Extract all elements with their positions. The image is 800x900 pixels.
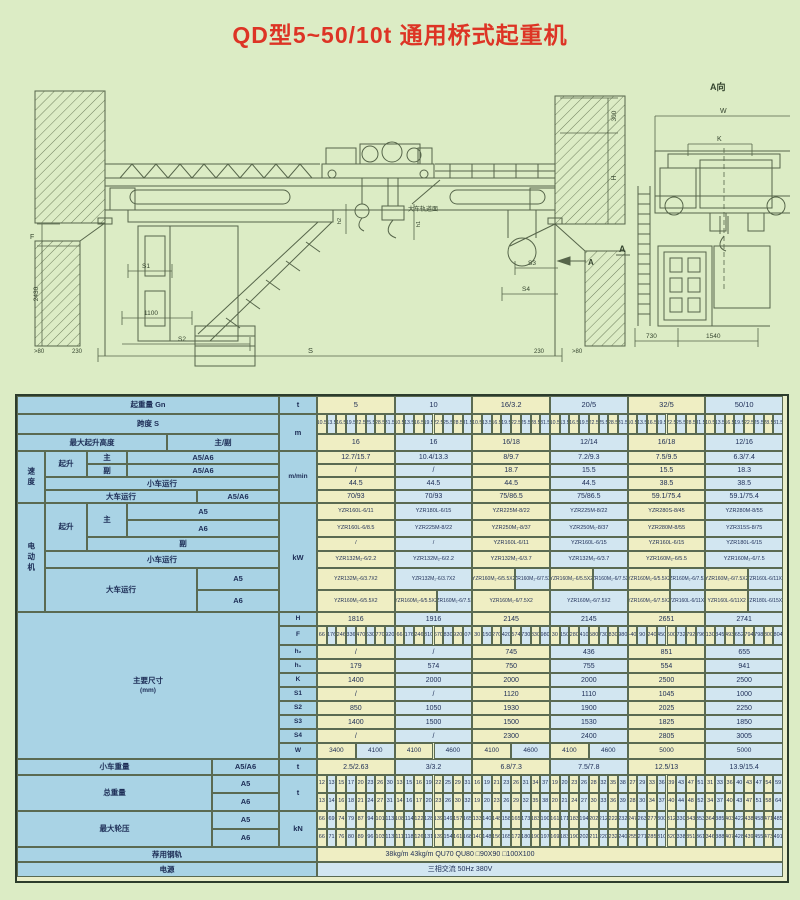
- data-cell-wl_a6: 103: [375, 829, 385, 847]
- data-cell-S1: 1120: [472, 687, 550, 701]
- data-cell-v_crane: 59.1/75.4: [628, 490, 706, 503]
- data-cell-S1: 1110: [550, 687, 628, 701]
- data-cell-h2: 851: [628, 645, 706, 659]
- data-cell-gw_a5: 30: [385, 775, 395, 793]
- data-cell-gw_a6: 21: [356, 793, 366, 811]
- header-motor: 电动机: [17, 503, 45, 612]
- data-cell-F: 176: [327, 626, 337, 645]
- data-cell-gw_a5: 16: [414, 775, 424, 793]
- data-cell-tw: 13.9/15.4: [705, 759, 783, 775]
- data-cell-span: 13.5: [560, 414, 570, 434]
- end-view-drawing: [616, 116, 790, 347]
- data-cell-span: 13.5: [327, 414, 337, 434]
- dim-K-label: K: [717, 136, 722, 143]
- data-cell-gw_a6: 43: [734, 793, 744, 811]
- data-cell-wl_a6: 190: [569, 829, 579, 847]
- girder-cylinder-left: [130, 190, 290, 204]
- data-cell-v_main: 10.4/13.3: [395, 451, 473, 464]
- ladder: [638, 186, 650, 326]
- header-dim-S1: S1: [279, 687, 317, 701]
- data-cell-F: 580: [589, 626, 599, 645]
- data-cell-span: 13.5: [637, 414, 647, 434]
- data-cell-lift: 16: [395, 434, 473, 451]
- data-cell-capacity: 10: [395, 396, 473, 414]
- data-cell-m_crane_a5: YZR160M₂-6/7.5X2: [593, 568, 628, 590]
- data-cell-gw_a6: 14: [327, 793, 337, 811]
- data-cell-gw_a5: 33: [715, 775, 725, 793]
- data-cell-wl_a6: 168: [463, 829, 473, 847]
- data-cell-F: 310: [424, 626, 434, 645]
- data-cell-S3: 1500: [472, 715, 550, 729]
- data-cell-gw_a5: 12: [317, 775, 327, 793]
- data-cell-m_main_a5: YZR280S-8/45: [628, 503, 706, 520]
- data-cell-gw_a5: 22: [434, 775, 444, 793]
- data-cell-m_main_a5: YZR225M-8/22: [550, 503, 628, 520]
- data-cell-span: 16.5: [492, 414, 502, 434]
- data-cell-S3: 1500: [395, 715, 473, 729]
- data-cell-span: 28.5: [686, 414, 696, 434]
- rail-surface-note: 大车轨道面: [408, 205, 438, 213]
- data-cell-wl_a5: 222: [608, 811, 618, 829]
- data-cell-gw_a5: 20: [356, 775, 366, 793]
- data-cell-v_aux: 15.5: [628, 464, 706, 477]
- spec-table: 起重量 Gnt51016/3.220/532/550/10跨度 Sm10.513…: [15, 394, 789, 883]
- header-cell: 副: [87, 537, 279, 551]
- data-cell-wl_a6: 118: [404, 829, 414, 847]
- header-cell: A5/A6: [127, 464, 279, 477]
- data-cell-wl_a5: 194: [579, 811, 589, 829]
- data-cell-m_main_a6: YZR315S-8/75: [705, 520, 783, 537]
- data-cell-wl_a6: 76: [336, 829, 346, 847]
- header-total-weight: 总重量: [17, 775, 212, 811]
- data-cell-wl_a5: 183: [569, 811, 579, 829]
- data-cell-F: 130: [705, 626, 715, 645]
- data-cell-span: 10.5: [395, 414, 405, 434]
- data-cell-gw_a6: 20: [424, 793, 434, 811]
- data-cell-F: -40: [628, 626, 638, 645]
- data-cell-v_main: 7.5/9.5: [628, 451, 706, 464]
- side-view-labels: F 2430 S1 1100 S2 S3 S4 S 230 230 >80 >8…: [30, 110, 618, 355]
- data-cell-m_crane_a5: YZR160L-6/11X2: [748, 568, 783, 590]
- data-cell-gw_a5: 19: [424, 775, 434, 793]
- data-cell-gw_a5: 51: [696, 775, 706, 793]
- data-cell-wl_a6: 202: [579, 829, 589, 847]
- data-cell-v_main: 6.3/7.4: [705, 451, 783, 464]
- data-cell-span: 25.5: [521, 414, 531, 434]
- data-cell-h1: 554: [628, 659, 706, 673]
- header-capacity: 起重量 Gn: [17, 396, 279, 414]
- data-cell-wl_a5: 74: [336, 811, 346, 829]
- data-cell-wl_a6: 113: [385, 829, 395, 847]
- data-cell-wl_a6: 211: [589, 829, 599, 847]
- data-cell-m_trolley: YZR132M₂-6/2.2: [317, 551, 395, 568]
- data-cell-span: 16.5: [725, 414, 735, 434]
- data-cell-gw_a6: 30: [453, 793, 463, 811]
- data-cell-gw_a5: 33: [647, 775, 657, 793]
- data-cell-wl_a6: 361: [696, 829, 706, 847]
- data-cell-m_main_a6: YZR225M-8/22: [395, 520, 473, 537]
- data-cell-S4: /: [317, 729, 395, 743]
- data-cell-v_crane: 70/93: [395, 490, 473, 503]
- data-cell-F: 493: [725, 626, 735, 645]
- header-cell: A5/A6: [212, 759, 279, 775]
- data-cell-wl_a5: 122: [414, 811, 424, 829]
- data-cell-H: 2651: [628, 612, 706, 626]
- data-cell-gw_a6: 31: [385, 793, 395, 811]
- data-cell-gw_a6: 20: [550, 793, 560, 811]
- data-cell-v_trolley: 44.5: [550, 477, 628, 490]
- data-cell-wl_a6: 320: [667, 829, 677, 847]
- data-cell-v_main: 8/9.7: [472, 451, 550, 464]
- data-cell-wl_a6: 80: [346, 829, 356, 847]
- data-cell-gw_a5: 59: [773, 775, 783, 793]
- data-cell-wl_a5: 403: [725, 811, 735, 829]
- data-cell-gw_a5: 19: [482, 775, 492, 793]
- data-cell-span: 31.5: [773, 414, 783, 434]
- data-cell-rail: 38kg/m 43kg/m QU70 QU80 □90X90 □100X100: [317, 847, 783, 862]
- data-cell-F: 280: [569, 626, 579, 645]
- header-cell: 大车运行: [45, 490, 197, 503]
- data-cell-wl_a6: 156: [492, 829, 502, 847]
- data-cell-gw_a6: 14: [395, 793, 405, 811]
- end-truck-left: [110, 188, 135, 210]
- data-cell-h1: 941: [705, 659, 783, 673]
- data-cell-wl_a6: 165: [501, 829, 511, 847]
- data-cell-gw_a5: 31: [705, 775, 715, 793]
- data-cell-gw_a5: 31: [463, 775, 473, 793]
- data-cell-gw_a6: 44: [676, 793, 686, 811]
- dim-300-label: 300: [611, 110, 618, 121]
- data-cell-wl_a5: 312: [667, 811, 677, 829]
- header-cell: A6: [212, 829, 279, 847]
- data-cell-wl_a6: 310: [657, 829, 667, 847]
- data-cell-m_aux: YZR160L-6/15: [550, 537, 628, 551]
- data-cell-gw_a5: 13: [327, 775, 337, 793]
- data-cell-v_aux: 18.3: [705, 464, 783, 477]
- data-cell-span: 16.5: [336, 414, 346, 434]
- data-cell-span: 28.5: [453, 414, 463, 434]
- dim-S4-label: S4: [522, 286, 530, 293]
- girder-section: [714, 246, 770, 308]
- data-cell-gw_a5: 29: [637, 775, 647, 793]
- data-cell-h2: 655: [705, 645, 783, 659]
- data-cell-wl_a5: 87: [356, 811, 366, 829]
- data-cell-m_crane_a6: YZR160M₂-6/5.5X2: [395, 590, 438, 612]
- data-cell-S1: 1045: [628, 687, 706, 701]
- data-cell-wl_a6: 338: [676, 829, 686, 847]
- header-cell: A6: [212, 793, 279, 811]
- data-cell-gw_a6: 17: [414, 793, 424, 811]
- data-cell-F: 770: [375, 626, 385, 645]
- data-cell-m_main_a5: YZR280M-8/55: [705, 503, 783, 520]
- data-cell-wl_a6: 473: [764, 829, 774, 847]
- header-cell: A5: [212, 811, 279, 829]
- data-cell-F: 345: [715, 626, 725, 645]
- data-cell-wl_a6: 96: [366, 829, 376, 847]
- data-cell-v_aux: 15.5: [550, 464, 628, 477]
- header-dim-W: W: [279, 743, 317, 759]
- data-cell-W: 5000: [705, 743, 783, 759]
- data-cell-gw_a6: 16: [336, 793, 346, 811]
- dim-230-right-label: 230: [534, 349, 545, 355]
- data-cell-span: 10.5: [317, 414, 327, 434]
- data-cell-gw_a5: 39: [667, 775, 677, 793]
- data-cell-S2: 1050: [395, 701, 473, 715]
- data-cell-m_main_a6: YZR250M₁-8/37: [472, 520, 550, 537]
- data-cell-F: 574: [511, 626, 521, 645]
- data-cell-span: 28.5: [375, 414, 385, 434]
- data-cell-F: 30: [472, 626, 482, 645]
- data-cell-H: 2145: [550, 612, 628, 626]
- data-cell-F: 336: [346, 626, 356, 645]
- data-cell-wl_a5: 300: [657, 811, 667, 829]
- data-cell-W: 3400: [317, 743, 356, 759]
- data-cell-F: 830: [608, 626, 618, 645]
- data-cell-gw_a5: 21: [492, 775, 502, 793]
- data-cell-lift: 12/16: [705, 434, 783, 451]
- data-cell-K: 2500: [705, 673, 783, 687]
- header-rail: 荐用钢轨: [17, 847, 317, 862]
- data-cell-wl_a5: 161: [550, 811, 560, 829]
- data-cell-K: 2000: [395, 673, 473, 687]
- data-cell-span: 10.5: [628, 414, 638, 434]
- data-cell-v_main: 12.7/15.7: [317, 451, 395, 464]
- data-cell-wl_a5: 133: [472, 811, 482, 829]
- data-cell-span: 10.5: [472, 414, 482, 434]
- data-cell-F: 270: [492, 626, 502, 645]
- data-cell-gw_a5: 15: [404, 775, 414, 793]
- header-dim-H: H: [279, 612, 317, 626]
- data-cell-m_aux: YZR180L-6/15: [705, 537, 783, 551]
- data-cell-F: 240: [647, 626, 657, 645]
- trolley: [322, 142, 434, 178]
- data-cell-F: 150: [560, 626, 570, 645]
- dim-S3-label: S3: [528, 260, 536, 267]
- data-cell-span: 22.5: [434, 414, 444, 434]
- data-cell-m_crane_a6: YZR160M₂-6/5.5X2: [317, 590, 395, 612]
- header-cell: 主: [87, 503, 127, 537]
- data-cell-F: 470: [356, 626, 366, 645]
- data-cell-h2: 436: [550, 645, 628, 659]
- data-cell-wl_a6: 388: [715, 829, 725, 847]
- data-cell-gw_a6: 19: [472, 793, 482, 811]
- header-power: 电源: [17, 862, 317, 877]
- dim-1100-label: 1100: [144, 310, 158, 317]
- header-max-wheel-load: 最大轮压: [17, 811, 212, 847]
- data-cell-K: 1400: [317, 673, 395, 687]
- data-cell-H: 2741: [705, 612, 783, 626]
- data-cell-gw_a6: 47: [744, 793, 754, 811]
- data-cell-gw_a6: 51: [754, 793, 764, 811]
- data-cell-span: 22.5: [589, 414, 599, 434]
- dim-H-label: H: [611, 175, 618, 180]
- data-cell-span: 28.5: [531, 414, 541, 434]
- data-cell-F: 732: [676, 626, 686, 645]
- data-cell-wl_a6: 455: [754, 829, 764, 847]
- data-cell-v_aux: 18.7: [472, 464, 550, 477]
- header-dim-K: K: [279, 673, 317, 687]
- data-cell-F: 796: [696, 626, 706, 645]
- data-cell-span: 25.5: [443, 414, 453, 434]
- data-cell-gw_a6: 35: [531, 793, 541, 811]
- data-cell-F: 410: [579, 626, 589, 645]
- data-cell-m_crane_a6: YZR160M₂-6/7.5X2: [550, 590, 628, 612]
- data-cell-m_crane_a6: YZR160M₂-6/7.5X2: [472, 590, 550, 612]
- dim-h1-label: h1: [416, 221, 422, 227]
- data-cell-K: 2000: [472, 673, 550, 687]
- data-cell-lift: 12/14: [550, 434, 628, 451]
- data-cell-m_main_a6: YZR280M-8/55: [628, 520, 706, 537]
- data-cell-wl_a6: 169: [550, 829, 560, 847]
- data-cell-gw_a6: 30: [637, 793, 647, 811]
- data-cell-gw_a5: 40: [734, 775, 744, 793]
- data-cell-F: 830: [443, 626, 453, 645]
- header-trolley-weight: 小车重量: [17, 759, 212, 775]
- data-cell-gw_a6: 13: [317, 793, 327, 811]
- data-cell-S4: /: [395, 729, 473, 743]
- data-cell-span: 25.5: [366, 414, 376, 434]
- data-cell-span: 31.5: [385, 414, 395, 434]
- data-cell-wl_a6: 407: [725, 829, 735, 847]
- data-cell-wl_a6: 111: [395, 829, 405, 847]
- data-cell-wl_a5: 101: [375, 811, 385, 829]
- data-cell-span: 19.5: [346, 414, 356, 434]
- data-cell-S4: 3005: [705, 729, 783, 743]
- data-cell-wl_a6: 428: [734, 829, 744, 847]
- data-cell-gw_a5: 36: [657, 775, 667, 793]
- header-speed: 速度: [17, 451, 45, 503]
- data-cell-F: 800: [764, 626, 774, 645]
- data-cell-wl_a6: 161: [453, 829, 463, 847]
- data-cell-gw_a5: 29: [453, 775, 463, 793]
- header-dim-h1: h₁: [279, 659, 317, 673]
- data-cell-wl_a6: 232: [608, 829, 618, 847]
- data-cell-F: 630: [366, 626, 376, 645]
- header-cell: m: [279, 414, 317, 451]
- data-cell-m_main_a5: YZR160L-6/11: [317, 503, 395, 520]
- data-cell-m_aux: YZR160L-6/15: [628, 537, 706, 551]
- data-cell-v_aux: /: [317, 464, 395, 477]
- data-cell-F: 246: [336, 626, 346, 645]
- data-cell-gw_a5: 15: [336, 775, 346, 793]
- data-cell-H: 1816: [317, 612, 395, 626]
- data-cell-span: 10.5: [705, 414, 715, 434]
- data-cell-K: 2500: [628, 673, 706, 687]
- data-cell-wl_a6: 139: [434, 829, 444, 847]
- data-cell-wl_a5: 114: [404, 811, 414, 829]
- data-cell-wl_a5: 165: [511, 811, 521, 829]
- dim-230-left-label: 230: [72, 349, 83, 355]
- data-cell-F: 980: [540, 626, 550, 645]
- data-cell-wl_a5: 140: [482, 811, 492, 829]
- data-cell-wl_a5: 353: [696, 811, 706, 829]
- data-cell-gw_a5: 20: [560, 775, 570, 793]
- data-cell-S3: 1850: [705, 715, 783, 729]
- data-cell-v_crane: 75/86.5: [550, 490, 628, 503]
- data-cell-gw_a5: 23: [569, 775, 579, 793]
- data-cell-wl_a5: 158: [501, 811, 511, 829]
- data-cell-gw_a5: 23: [366, 775, 376, 793]
- data-cell-W: 4600: [511, 743, 550, 759]
- data-cell-span: 31.5: [618, 414, 628, 434]
- data-cell-span: 16.5: [647, 414, 657, 434]
- header-dim-S3: S3: [279, 715, 317, 729]
- data-cell-W: 4600: [434, 743, 473, 759]
- header-cell: A5/A6: [197, 490, 279, 503]
- data-cell-wl_a5: 69: [327, 811, 337, 829]
- data-cell-gw_a6: 24: [366, 793, 376, 811]
- data-cell-gw_a5: 26: [511, 775, 521, 793]
- data-cell-gw_a6: 58: [764, 793, 774, 811]
- data-cell-wl_a5: 148: [492, 811, 502, 829]
- data-cell-F: 66: [317, 626, 327, 645]
- data-cell-F: 980: [618, 626, 628, 645]
- data-cell-gw_a6: 16: [404, 793, 414, 811]
- data-cell-gw_a6: 18: [346, 793, 356, 811]
- dimension-lines: [37, 98, 618, 362]
- dim-S1-label: S1: [142, 263, 150, 270]
- data-cell-wl_a6: 154: [443, 829, 453, 847]
- data-cell-S3: 1400: [317, 715, 395, 729]
- data-cell-gw_a6: 32: [463, 793, 473, 811]
- data-cell-F: 920: [453, 626, 463, 645]
- data-cell-m_crane_a6: YZR180L-6/15X2: [748, 590, 783, 612]
- data-cell-wl_a6: 183: [560, 829, 570, 847]
- data-cell-gw_a5: 31: [521, 775, 531, 793]
- data-cell-F: 176: [404, 626, 414, 645]
- data-cell-wl_a6: 351: [686, 829, 696, 847]
- data-cell-gw_a6: 33: [599, 793, 609, 811]
- data-cell-gw_a5: 37: [540, 775, 550, 793]
- data-cell-W: 4100: [472, 743, 511, 759]
- data-cell-wl_a6: 240: [618, 829, 628, 847]
- data-cell-tw: 12.5/13: [628, 759, 706, 775]
- data-cell-gw_a5: 13: [395, 775, 405, 793]
- data-cell-span: 13.5: [404, 414, 414, 434]
- data-cell-gw_a6: 52: [696, 793, 706, 811]
- data-cell-F: 652: [734, 626, 744, 645]
- data-cell-wl_a5: 422: [734, 811, 744, 829]
- data-cell-gw_a6: 27: [375, 793, 385, 811]
- section-arrow: [558, 257, 586, 265]
- data-cell-F: 246: [414, 626, 424, 645]
- data-cell-wl_a5: 171: [560, 811, 570, 829]
- data-cell-F: 730: [521, 626, 531, 645]
- data-cell-wl_a5: 277: [647, 811, 657, 829]
- data-cell-v_crane: 75/86.5: [472, 490, 550, 503]
- data-cell-gw_a5: 43: [744, 775, 754, 793]
- data-cell-m_aux: YZR160L-6/11: [472, 537, 550, 551]
- data-cell-span: 22.5: [511, 414, 521, 434]
- data-cell-S1: /: [395, 687, 473, 701]
- data-cell-gw_a6: 34: [647, 793, 657, 811]
- data-cell-span: 16.5: [569, 414, 579, 434]
- header-cell: A5: [127, 503, 279, 520]
- dim-W-label: W: [720, 108, 727, 115]
- data-cell-F: 794: [744, 626, 754, 645]
- data-cell-wl_a6: 346: [705, 829, 715, 847]
- data-cell-wl_a5: 173: [521, 811, 531, 829]
- data-cell-gw_a6: 26: [443, 793, 453, 811]
- data-cell-m_crane_a5: YZR160M₂-6/7.5X2: [515, 568, 550, 590]
- data-cell-v_crane: 70/93: [317, 490, 395, 503]
- data-cell-wl_a5: 263: [637, 811, 647, 829]
- data-cell-wl_a5: 190: [540, 811, 550, 829]
- data-cell-h1: 750: [472, 659, 550, 673]
- header-cell: 小车运行: [45, 477, 279, 490]
- data-cell-lift: 16: [317, 434, 395, 451]
- data-cell-wl_a5: 330: [676, 811, 686, 829]
